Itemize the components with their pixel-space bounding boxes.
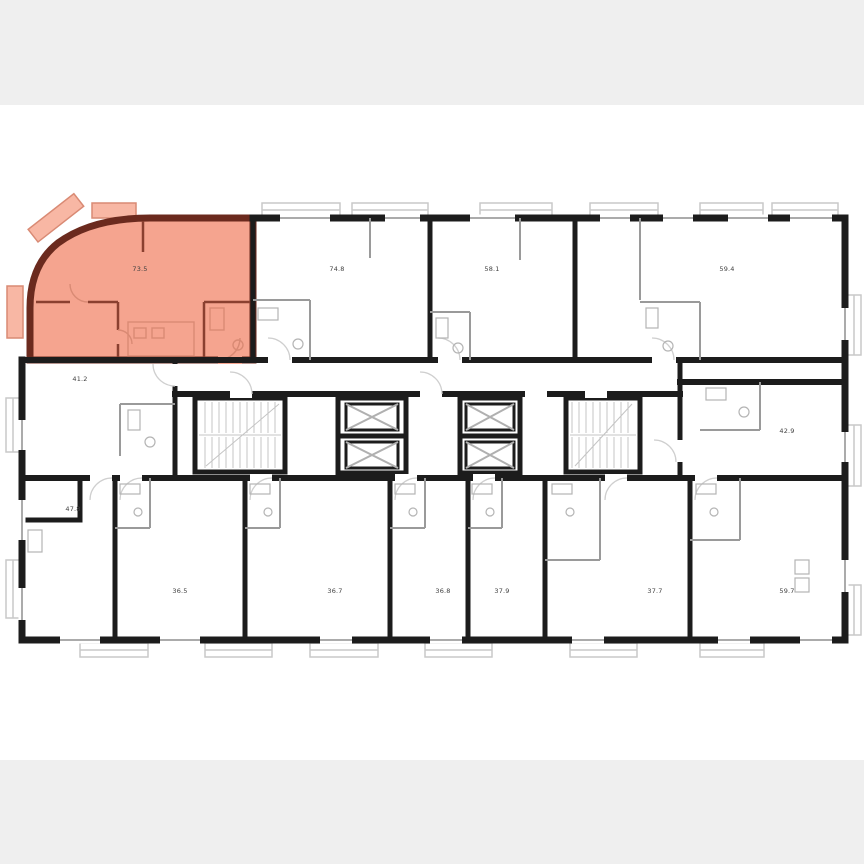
- unit-area-37-7: 37.7: [647, 587, 662, 595]
- floorplan-svg: 73.5 74.8 58.1 59.4 41.2 42.9 47.8 36.5 …: [0, 0, 864, 864]
- unit-area-36-7: 36.7: [327, 587, 342, 595]
- unit-area-42-9: 42.9: [779, 427, 794, 435]
- unit-area-36-8: 36.8: [435, 587, 450, 595]
- unit-area-59-4: 59.4: [719, 265, 734, 273]
- unit-area-47-8: 47.8: [65, 505, 80, 513]
- unit-area-59-7: 59.7: [779, 587, 794, 595]
- unit-area-74-8: 74.8: [329, 265, 344, 273]
- unit-area-36-5: 36.5: [172, 587, 187, 595]
- unit-area-41-2: 41.2: [72, 375, 87, 383]
- unit-73-5-shape[interactable]: [30, 218, 253, 360]
- stair-core-2: [566, 398, 640, 472]
- unit-area-37-9: 37.9: [494, 587, 509, 595]
- elevator-core-2: [460, 398, 520, 473]
- unit-area-58-1: 58.1: [484, 265, 499, 273]
- elevator-core-1: [338, 398, 406, 473]
- unit-area-73-5: 73.5: [132, 265, 147, 273]
- stair-core-1: [195, 398, 285, 472]
- highlighted-unit[interactable]: [30, 218, 253, 364]
- floorplan-image: 73.5 74.8 58.1 59.4 41.2 42.9 47.8 36.5 …: [0, 0, 864, 864]
